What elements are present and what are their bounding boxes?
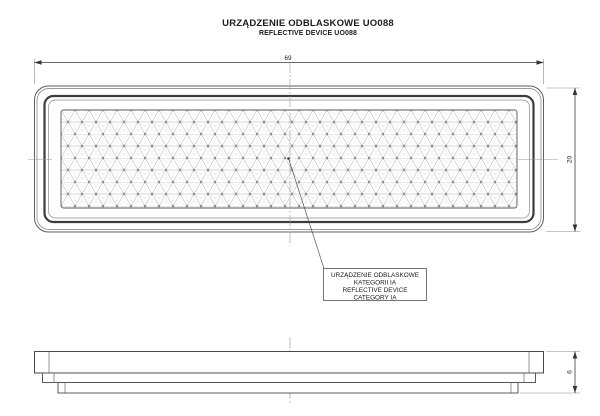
height-value: 20	[567, 156, 574, 164]
side-main-body	[35, 352, 544, 374]
side-view	[35, 352, 544, 394]
callout-line-4: CATEGORY IA	[354, 295, 398, 302]
side-base-layer	[58, 383, 518, 394]
callout-line-1: URZĄDZENIE ODBLASKOWE	[331, 272, 419, 279]
side-step	[43, 373, 536, 383]
callout-line-3: REFLECTIVE DEVICE	[343, 287, 408, 294]
thickness-value: 6	[567, 370, 574, 374]
drawing-title: URZĄDZENIE ODBLASKOWE UO088	[222, 18, 394, 29]
width-value: 69	[284, 55, 292, 62]
dimension-width: 69	[35, 55, 544, 84]
drawing-sheet: URZĄDZENIE ODBLASKOWE UO088 REFLECTIVE D…	[0, 0, 600, 416]
callout-line-2: KATEGORII IA	[354, 280, 397, 287]
technical-drawing: URZĄDZENIE ODBLASKOWE UO088 REFLECTIVE D…	[0, 0, 600, 416]
drawing-subtitle: REFLECTIVE DEVICE UO088	[259, 30, 357, 37]
